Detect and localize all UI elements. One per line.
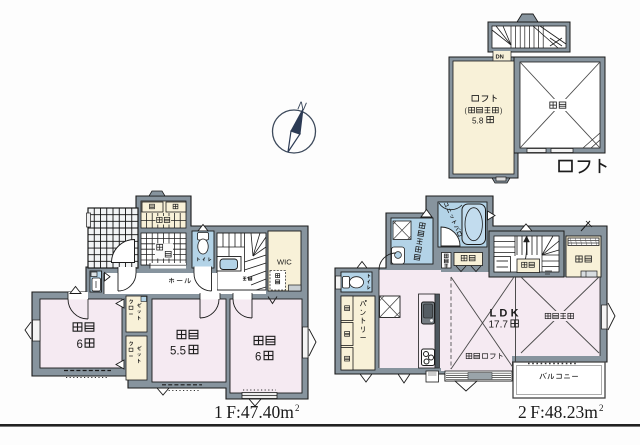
svg-text:WIC: WIC bbox=[277, 258, 292, 267]
svg-text:): ) bbox=[500, 108, 502, 115]
svg-text:2: 2 bbox=[599, 403, 604, 413]
svg-text:1 F:47.40m: 1 F:47.40m bbox=[214, 402, 294, 422]
svg-text:LDK: LDK bbox=[490, 308, 522, 320]
svg-text:2 F:48.23m: 2 F:48.23m bbox=[518, 402, 598, 422]
svg-text:5.5: 5.5 bbox=[170, 346, 186, 358]
svg-text:6: 6 bbox=[255, 352, 261, 364]
svg-text:5.8: 5.8 bbox=[472, 117, 484, 126]
svg-text:6: 6 bbox=[77, 339, 83, 351]
svg-text:2: 2 bbox=[295, 403, 300, 413]
svg-text:17.7: 17.7 bbox=[489, 320, 509, 331]
svg-text:DN: DN bbox=[496, 55, 504, 61]
